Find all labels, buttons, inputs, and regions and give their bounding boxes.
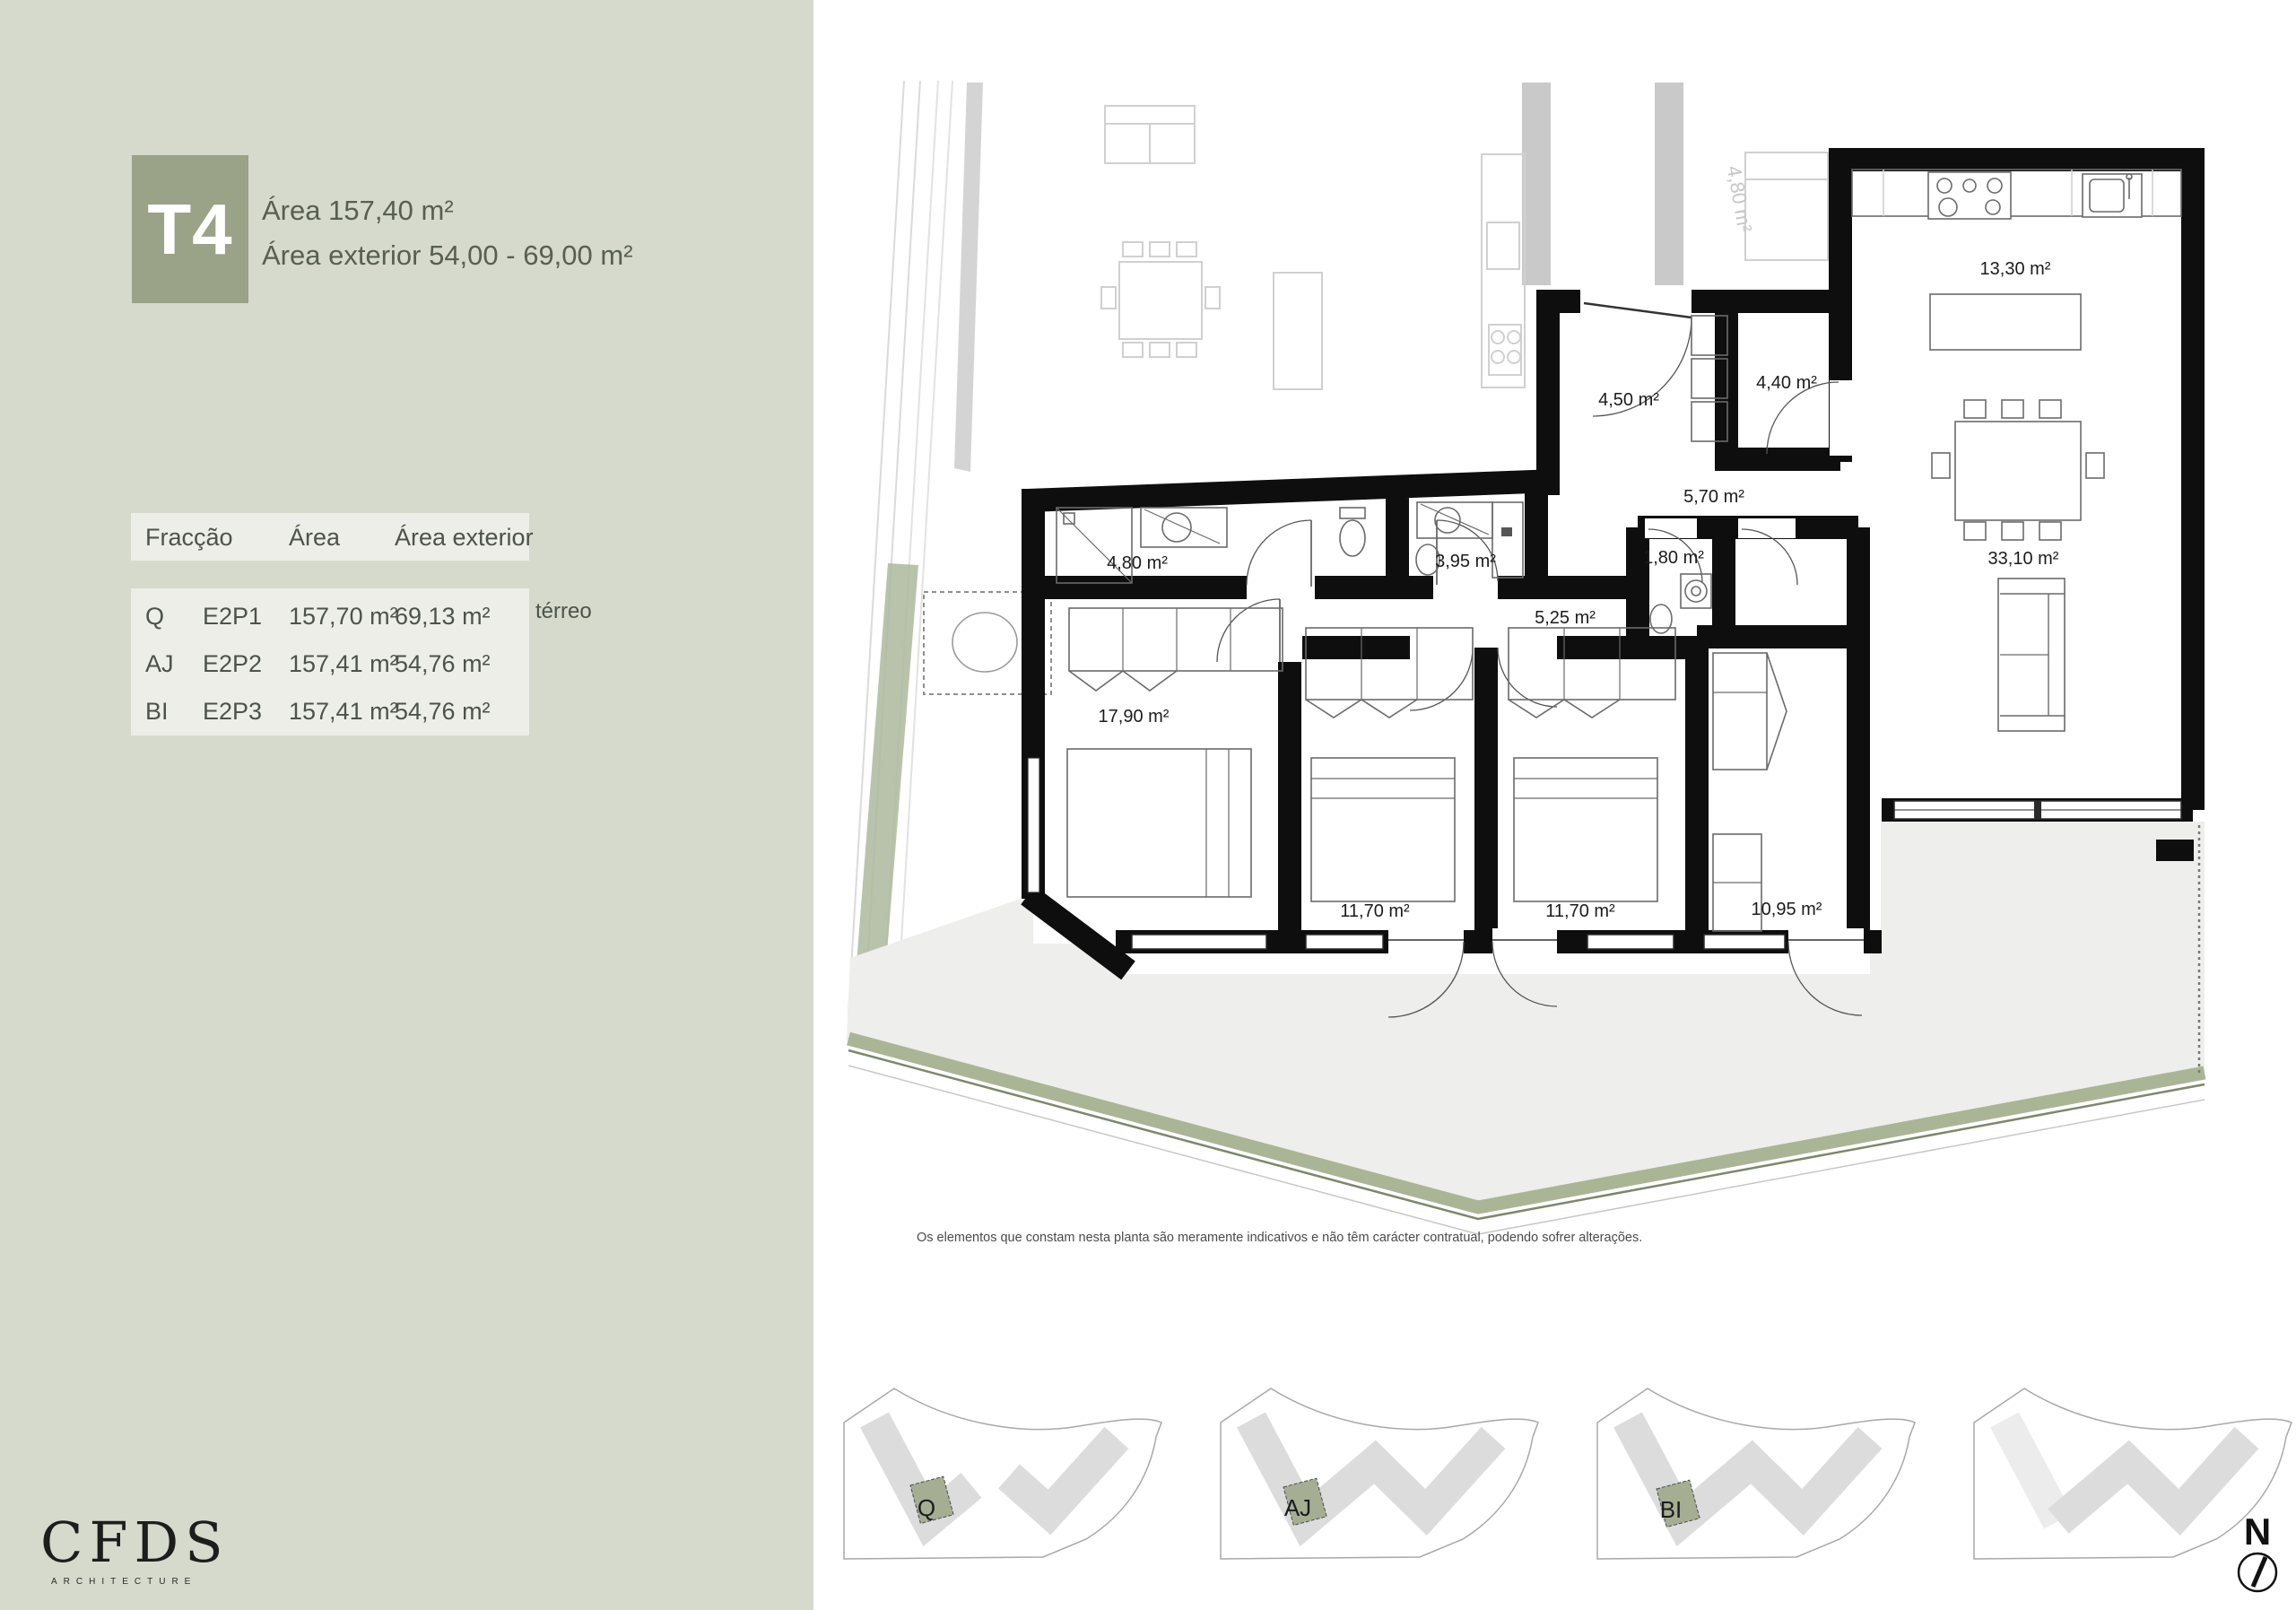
room-label-bath1: 4,80 m² xyxy=(1107,553,1168,573)
north-arrow: N xyxy=(2239,1510,2276,1591)
street-band xyxy=(848,81,952,1030)
thumbnail-label: AJ xyxy=(1284,1494,1311,1521)
room-label-entry: 4,50 m² xyxy=(1598,390,1659,410)
corridor-wall xyxy=(1522,83,1551,285)
thumbnail-q: Q xyxy=(844,1388,1161,1559)
site-thumbnails: Q AJ BI xyxy=(844,1388,2292,1559)
floor-plan: 4,80 m² xyxy=(0,0,2296,1610)
room-label-bedroom2: 11,70 m² xyxy=(1340,901,1410,921)
north-label: N xyxy=(2244,1510,2271,1553)
dining-table xyxy=(1932,400,2104,540)
room-label-bedroom1: 17,90 m² xyxy=(1099,707,1170,727)
room-label-living: 33,10 m² xyxy=(1988,549,2059,569)
thumbnail-label: BI xyxy=(1660,1496,1683,1523)
corridor-wall xyxy=(1655,83,1683,285)
room-label-wc: 1,80 m² xyxy=(1643,548,1704,568)
thumbnail-aj: AJ xyxy=(1221,1388,1538,1559)
thumbnail-bi: BI xyxy=(1597,1388,1915,1559)
disclaimer: Os elementos que constam nesta planta sã… xyxy=(917,1231,1805,1245)
room-label-kitchen: 13,30 m² xyxy=(1980,259,2051,279)
room-label-storage: 4,40 m² xyxy=(1756,373,1817,393)
room-label-bedroom3: 11,70 m² xyxy=(1545,901,1615,921)
room-label-hall: 5,70 m² xyxy=(1683,487,1744,507)
room-label-neighbor-bath: 4,80 m² xyxy=(1723,164,1757,234)
thumbnail-label: Q xyxy=(918,1494,935,1521)
page: T4 Área 157,40 m² Área exterior 54,00 - … xyxy=(0,0,2296,1610)
kitchen-island xyxy=(1930,294,2081,350)
sofa xyxy=(1998,579,2065,731)
room-label-hall2: 5,25 m² xyxy=(1535,608,1596,628)
room-label-bath2: 3,95 m² xyxy=(1435,552,1496,571)
room-label-bedroom4: 10,95 m² xyxy=(1752,900,1822,919)
